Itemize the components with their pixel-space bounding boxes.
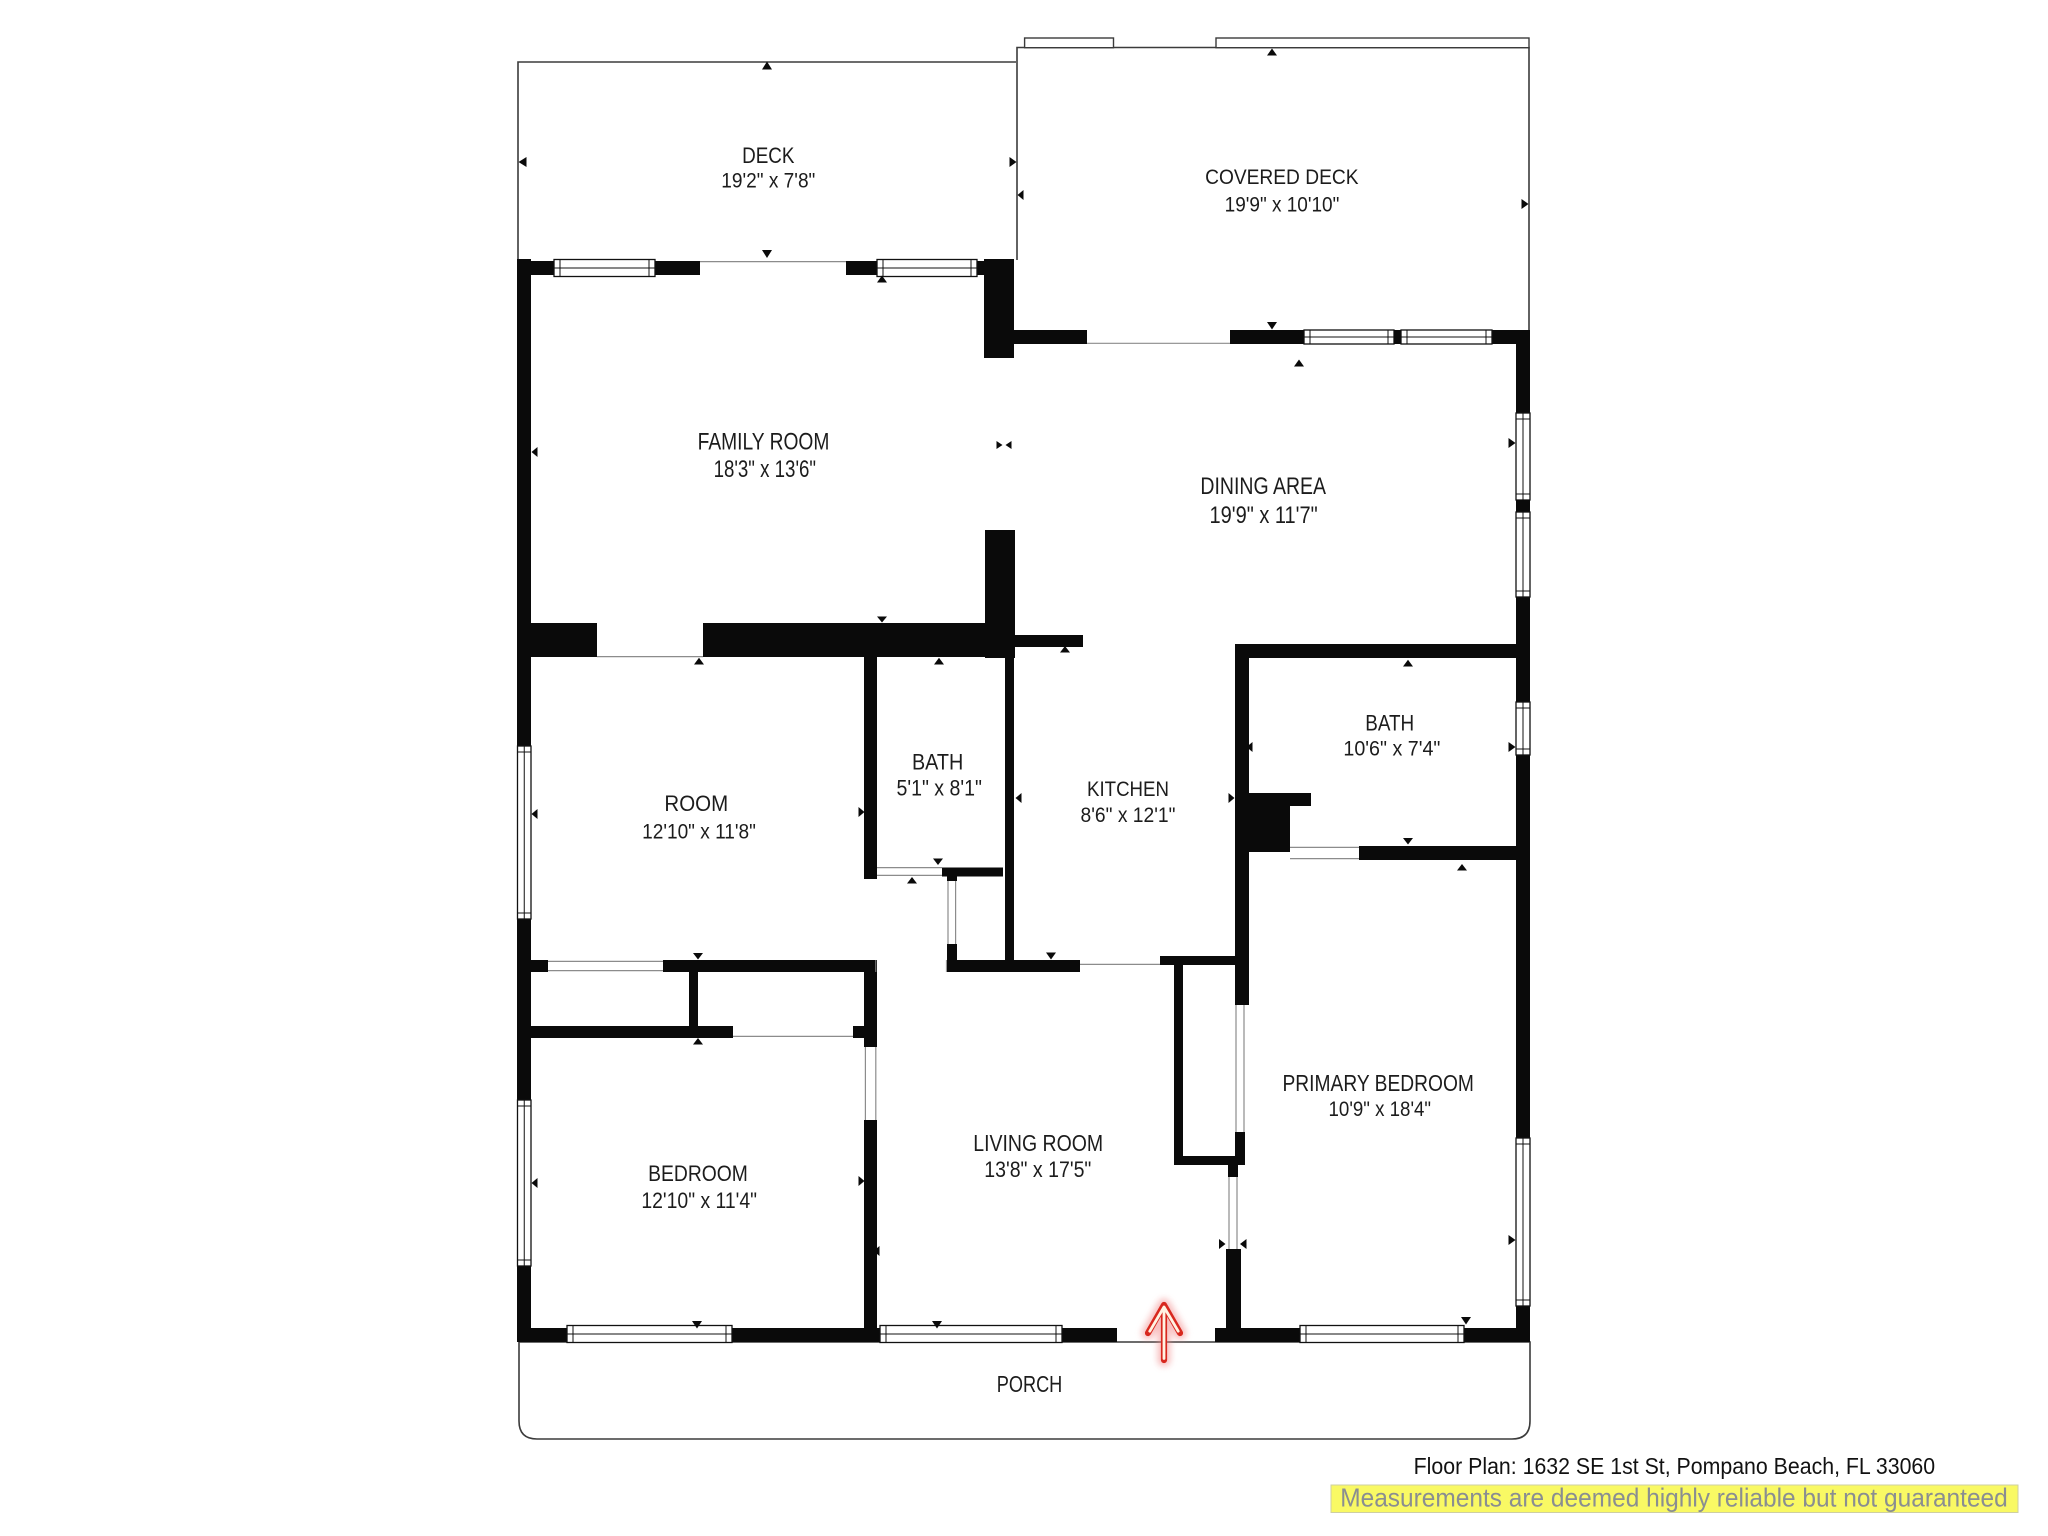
svg-text:LIVING ROOM: LIVING ROOM (973, 1132, 1103, 1157)
svg-text:10'6" x 7'4": 10'6" x 7'4" (1343, 737, 1440, 761)
svg-text:BEDROOM: BEDROOM (648, 1162, 748, 1187)
svg-text:DINING AREA: DINING AREA (1200, 472, 1326, 499)
svg-text:PORCH: PORCH (997, 1372, 1063, 1398)
svg-text:BATH: BATH (1365, 712, 1414, 736)
svg-text:12'10" x 11'8": 12'10" x 11'8" (642, 821, 756, 844)
svg-text:BATH: BATH (912, 750, 963, 774)
svg-text:13'8" x 17'5": 13'8" x 17'5" (984, 1158, 1091, 1182)
svg-text:18'3" x 13'6": 18'3" x 13'6" (714, 456, 816, 483)
svg-text:ROOM: ROOM (664, 792, 728, 817)
svg-text:KITCHEN: KITCHEN (1087, 778, 1169, 801)
svg-text:19'9" x 10'10": 19'9" x 10'10" (1225, 194, 1340, 217)
svg-text:DECK: DECK (742, 144, 795, 169)
svg-text:COVERED DECK: COVERED DECK (1205, 166, 1359, 189)
svg-text:5'1" x 8'1": 5'1" x 8'1" (896, 776, 981, 800)
svg-text:12'10" x 11'4": 12'10" x 11'4" (641, 1189, 757, 1213)
svg-text:19'9" x 11'7": 19'9" x 11'7" (1210, 501, 1318, 528)
svg-text:19'2" x 7'8": 19'2" x 7'8" (721, 170, 815, 193)
svg-text:Floor Plan: 1632 SE 1st St, Po: Floor Plan: 1632 SE 1st St, Pompano Beac… (1414, 1453, 1935, 1479)
svg-text:8'6" x 12'1": 8'6" x 12'1" (1081, 804, 1176, 827)
svg-text:PRIMARY BEDROOM: PRIMARY BEDROOM (1282, 1070, 1473, 1096)
svg-text:10'9" x 18'4": 10'9" x 18'4" (1329, 1098, 1432, 1121)
svg-text:FAMILY ROOM: FAMILY ROOM (698, 427, 830, 455)
svg-text:Measurements are deemed highly: Measurements are deemed highly reliable … (1340, 1484, 2008, 1513)
